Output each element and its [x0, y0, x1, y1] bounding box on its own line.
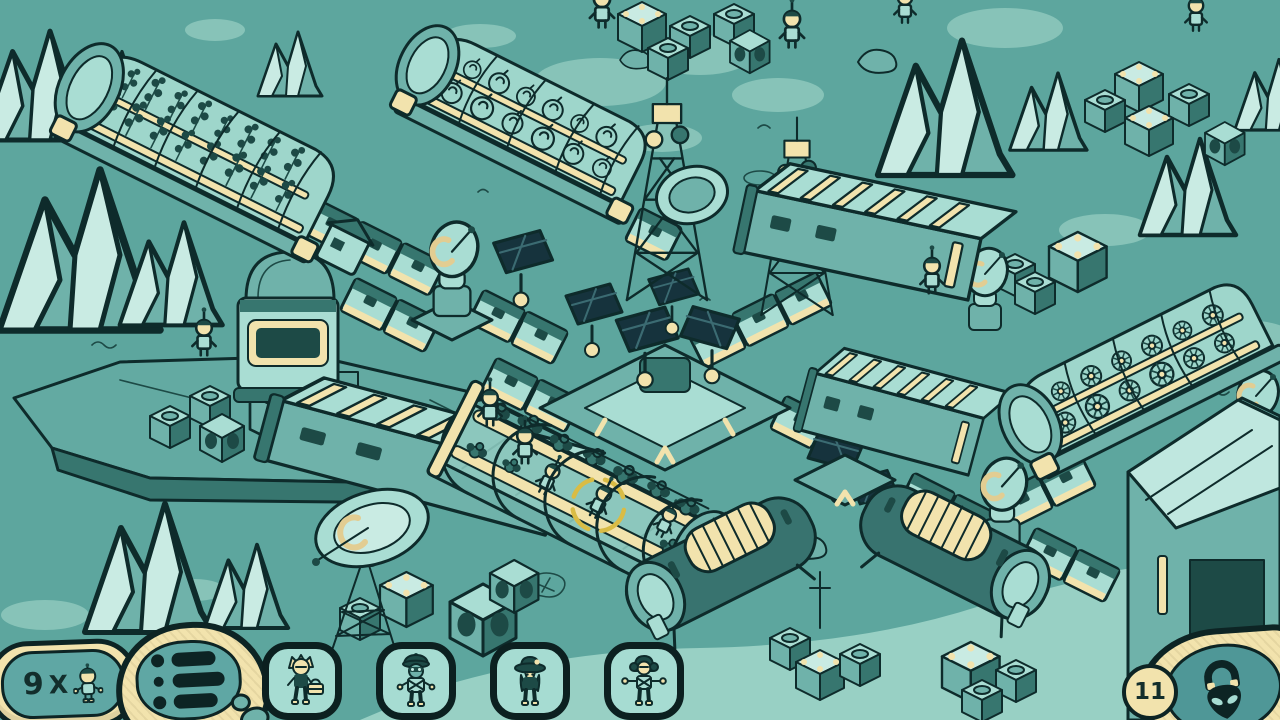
game-screen: 9 X	[0, 0, 1280, 720]
world-view	[0, 0, 1280, 720]
crew-blond-toolbox-portrait	[276, 653, 328, 709]
crew-portrait-button-1[interactable]	[262, 642, 342, 720]
lock-badge-oval	[1159, 636, 1280, 720]
alien-padlock-icon	[1190, 654, 1256, 720]
crew-portrait-button-3[interactable]	[490, 642, 570, 720]
crew-portrait-button-2[interactable]	[376, 642, 456, 720]
crew-headphones-portrait	[618, 653, 670, 709]
crew-count-multiplier: X	[48, 671, 68, 697]
list-menu-icon	[149, 647, 228, 713]
lock-count: 11	[1134, 679, 1166, 705]
greenhouse-pumpkins[interactable]	[377, 15, 668, 226]
crew-cap-portrait	[390, 653, 442, 709]
crew-wide-hat-portrait	[504, 653, 556, 709]
crew-counter-inner: 9 X	[0, 648, 126, 720]
astronaut-icon	[72, 663, 103, 704]
menu-button-oval	[134, 637, 244, 720]
lock-count-badge: 11	[1122, 664, 1178, 720]
crew-portrait-button-4[interactable]	[604, 642, 684, 720]
crew-count: 9	[22, 670, 44, 701]
